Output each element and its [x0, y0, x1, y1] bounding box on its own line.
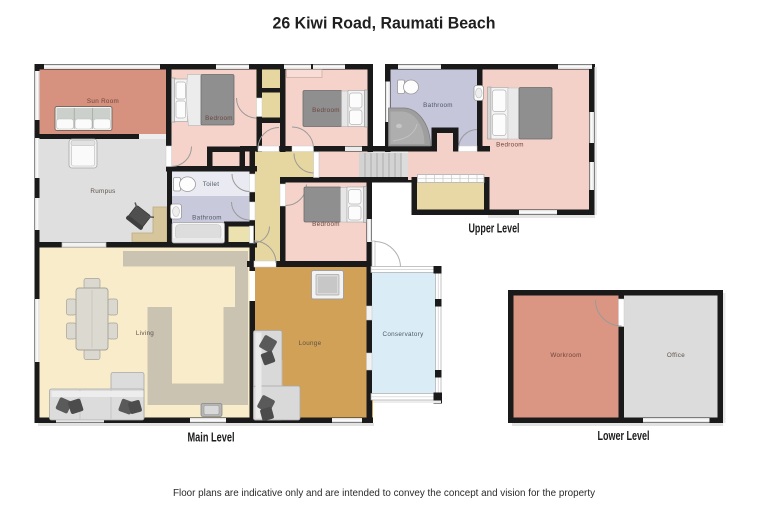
svg-text:Bedroom: Bedroom — [312, 221, 340, 228]
svg-text:Bedroom: Bedroom — [312, 107, 340, 114]
svg-text:Living: Living — [136, 330, 154, 337]
svg-text:Upper Level: Upper Level — [469, 221, 520, 236]
svg-text:Toilet: Toilet — [203, 181, 220, 188]
svg-text:Lower Level: Lower Level — [598, 428, 650, 443]
svg-text:Bathroom: Bathroom — [192, 215, 222, 222]
svg-text:Bathroom: Bathroom — [423, 102, 453, 109]
svg-text:Office: Office — [667, 352, 685, 359]
svg-text:Bedroom: Bedroom — [205, 115, 233, 122]
svg-text:Rumpus: Rumpus — [90, 188, 115, 195]
svg-text:Floor plans are indicative onl: Floor plans are indicative only and are … — [173, 488, 595, 499]
svg-text:Workroom: Workroom — [550, 352, 581, 359]
svg-text:Sun Room: Sun Room — [87, 98, 119, 105]
svg-text:Bedroom: Bedroom — [496, 142, 524, 149]
svg-text:Lounge: Lounge — [299, 340, 322, 347]
svg-text:Conservatory: Conservatory — [382, 331, 424, 338]
svg-text:Main Level: Main Level — [188, 430, 235, 445]
svg-text:26 Kiwi Road, Raumati Beach: 26 Kiwi Road, Raumati Beach — [273, 14, 496, 33]
